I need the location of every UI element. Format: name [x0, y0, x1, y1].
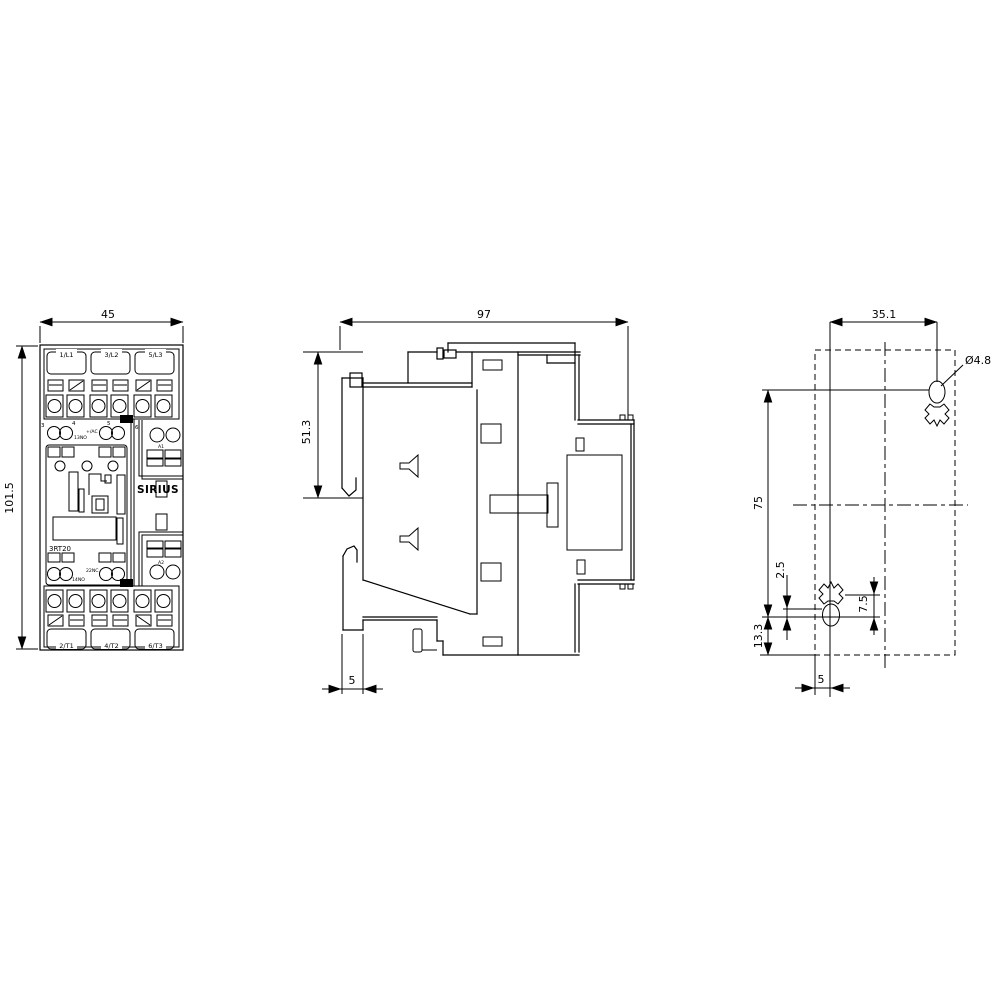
front-right-column: A1 SIRIUS A2: [137, 420, 183, 586]
side-din-offset-label: 5: [349, 674, 356, 687]
aux-bottom-right-label: 22NC: [86, 568, 99, 574]
aux-digit-1: 3: [41, 423, 45, 429]
terminal-label-5L3: 5/L3: [148, 351, 162, 359]
terminal-label-2T1: 2/T1: [59, 642, 73, 650]
front-middle-body: 3 4 5 6 13NO +/AC 3RT20 2: [41, 421, 139, 585]
hole-pitch-v-label: 75: [752, 496, 765, 510]
aux-digit-3: 5: [107, 421, 111, 427]
side-width-dim-label: 97: [477, 308, 491, 321]
side-view: 97 51.3 5: [300, 308, 634, 694]
dim-left-label: 5: [818, 673, 825, 686]
front-top-terminal-block: 1/L1 3/L2 5/L3: [46, 349, 174, 417]
aux-digit-2: 4: [72, 421, 76, 427]
front-height-dim-label: 101.5: [3, 482, 16, 514]
brand-label: SIRIUS: [137, 484, 179, 496]
dimension-drawing: 45 101.5 1/L1 3/L2 5/L3: [0, 0, 1000, 1000]
dim-bottom-label: 13.3: [752, 624, 765, 649]
hole-dia-label: Ø4.8: [965, 354, 991, 367]
hole-pitch-h-label: 35.1: [872, 308, 897, 321]
aux-digit-4: 6: [135, 425, 139, 431]
terminal-label-1L1: 1/L1: [59, 351, 73, 359]
terminal-label-3L2: 3/L2: [104, 351, 118, 359]
front-width-dim-label: 45: [101, 308, 115, 321]
side-view-outline: [342, 343, 634, 655]
coil-terminal-a1-label: A1: [158, 444, 164, 450]
drilling-pattern-view: 35.1 Ø4.8 75 13.3 2.5 7.5 5: [752, 308, 991, 697]
aux-top-left-label: 13NO: [74, 435, 87, 441]
model-label: 3RT20: [49, 545, 71, 553]
keyhole-bottom: [819, 582, 843, 626]
dimension-drawing-page: 45 101.5 1/L1 3/L2 5/L3: [0, 0, 1000, 1000]
drill-outline: [760, 322, 968, 697]
dim-top-offset-label: 2.5: [774, 561, 787, 579]
side-height-dim-label: 51.3: [300, 420, 313, 445]
dim-slot-label: 7.5: [857, 595, 870, 613]
keyhole-top: [925, 365, 963, 426]
aux-top-right-label: +/AC: [86, 429, 98, 435]
aux-bottom-left-label: 14NO: [72, 577, 85, 583]
front-view: 45 101.5 1/L1 3/L2 5/L3: [3, 308, 183, 650]
front-bottom-terminal-block: 2/T1 4/T2 6/T3: [46, 590, 174, 650]
terminal-label-6T3: 6/T3: [148, 642, 162, 650]
terminal-label-4T2: 4/T2: [104, 642, 118, 650]
